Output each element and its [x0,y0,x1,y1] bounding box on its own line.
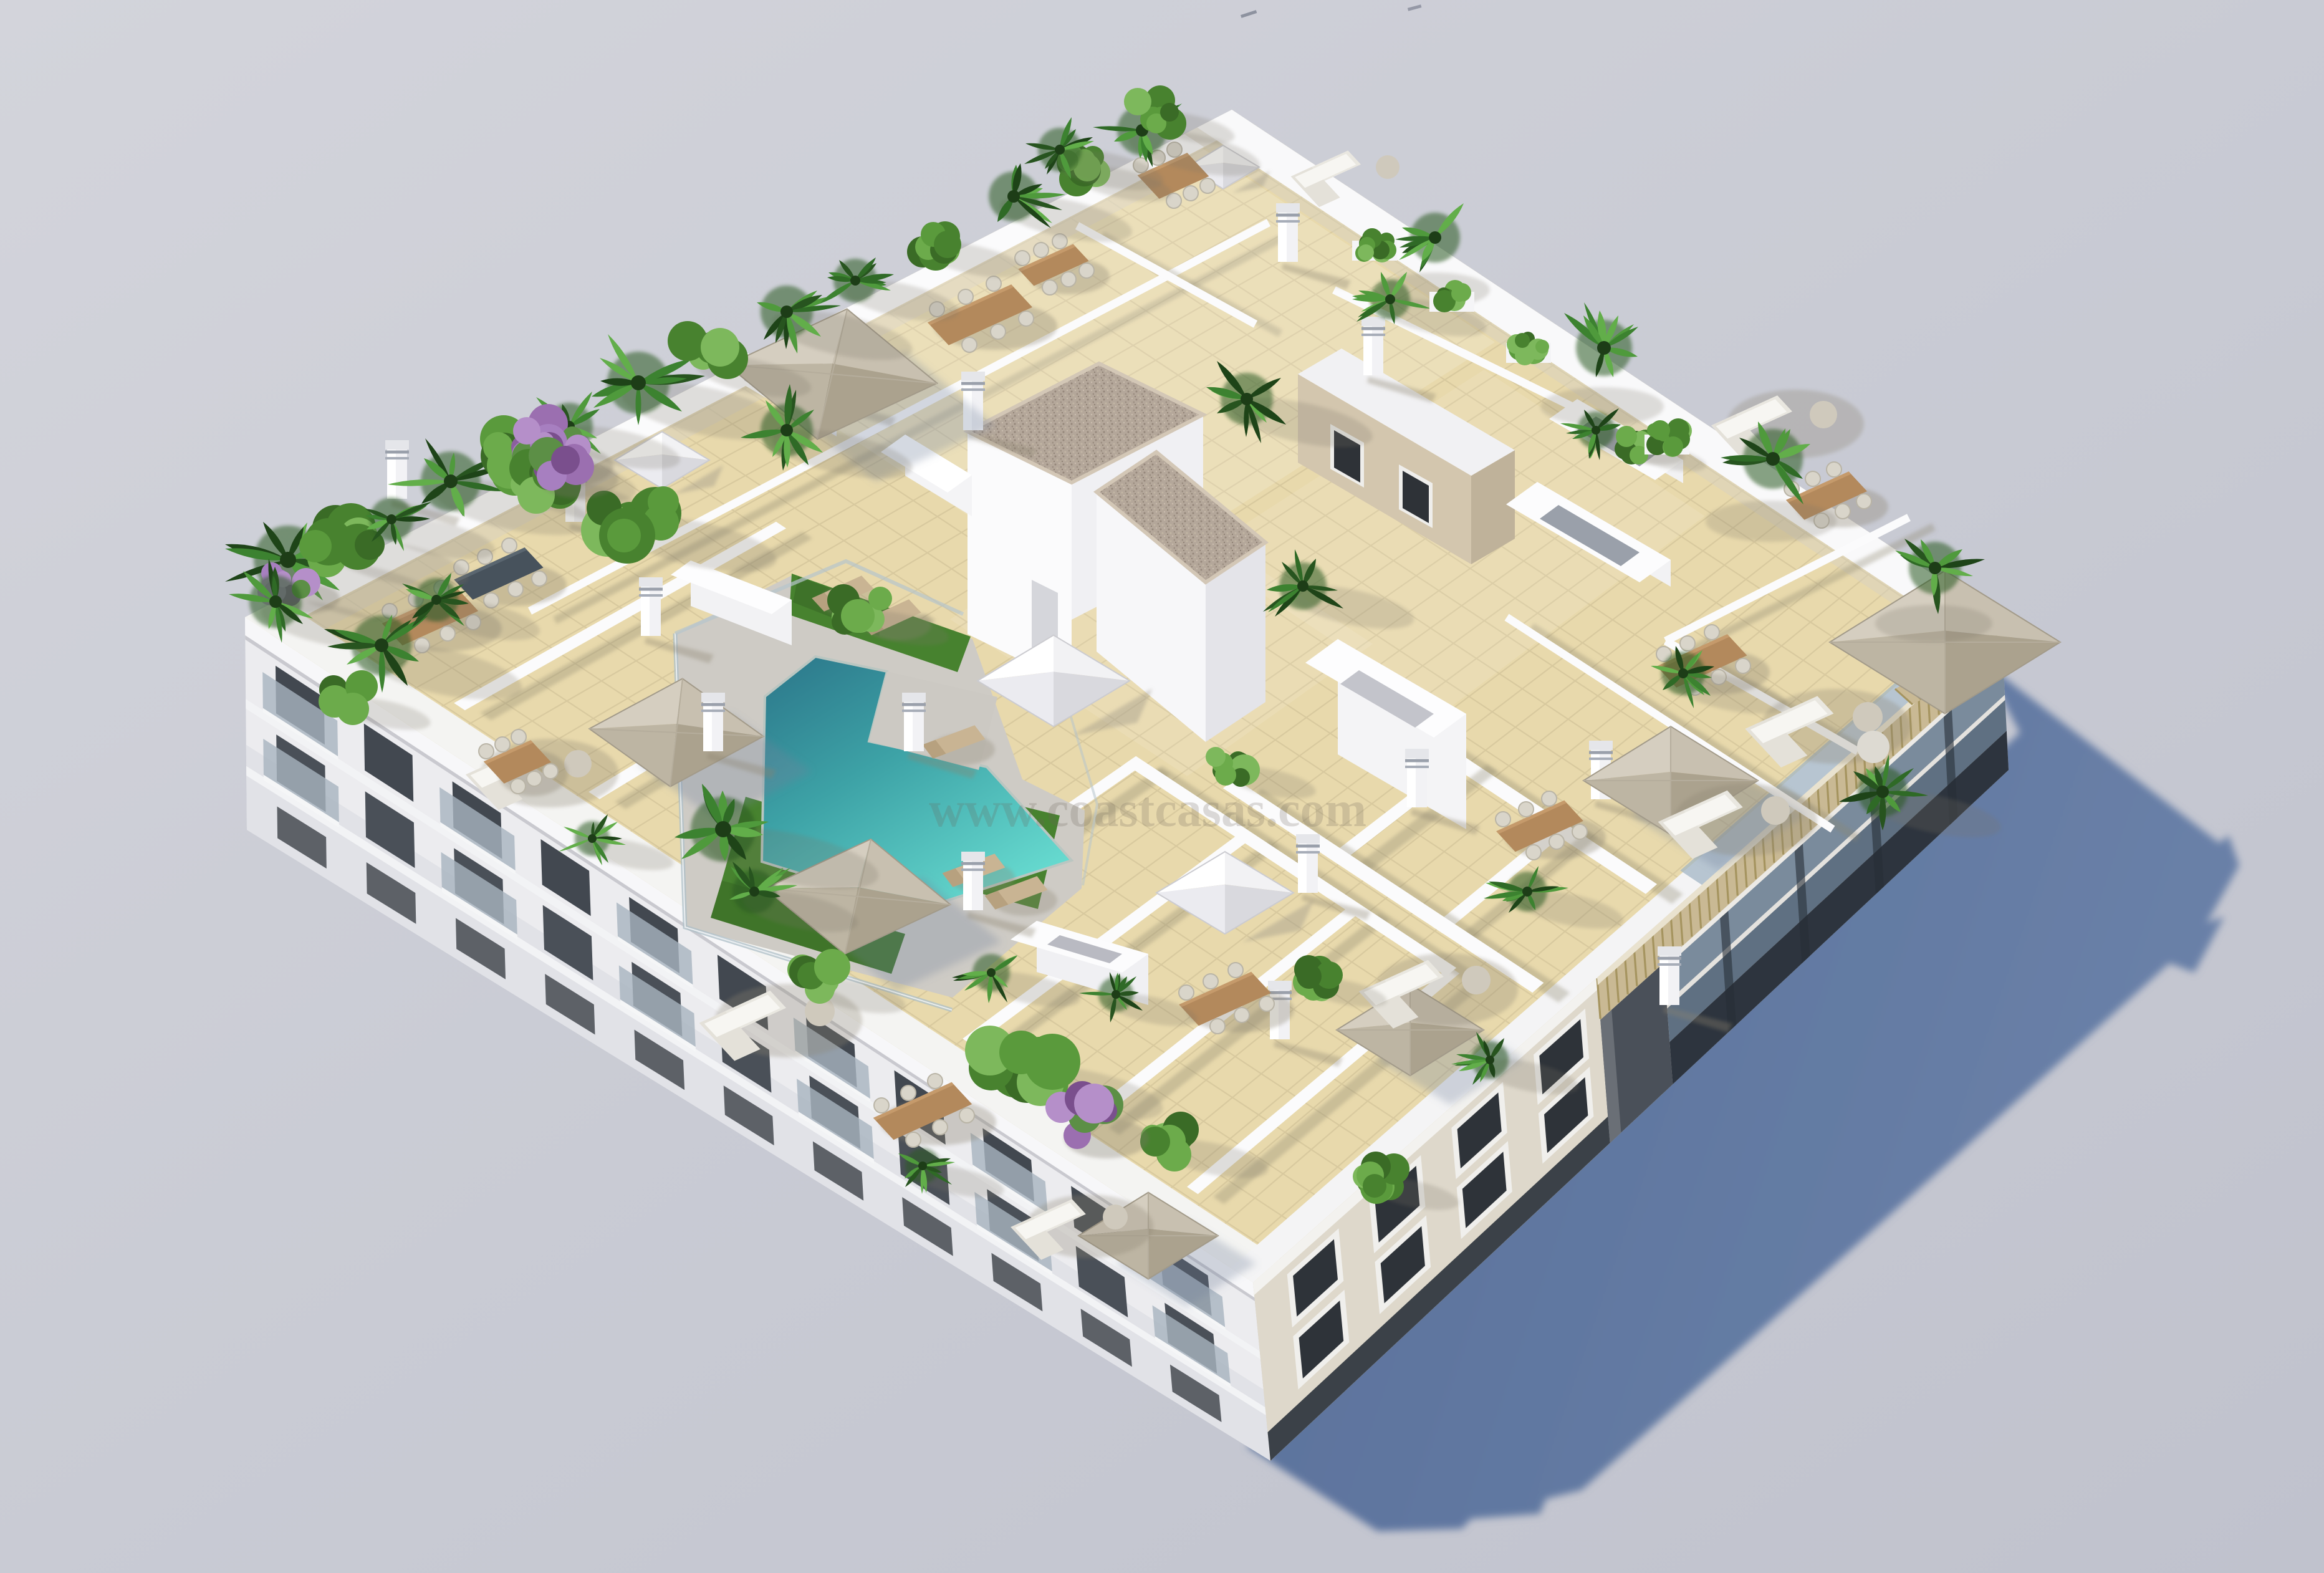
svg-text:www.coastcasas.com: www.coastcasas.com [929,782,1366,837]
